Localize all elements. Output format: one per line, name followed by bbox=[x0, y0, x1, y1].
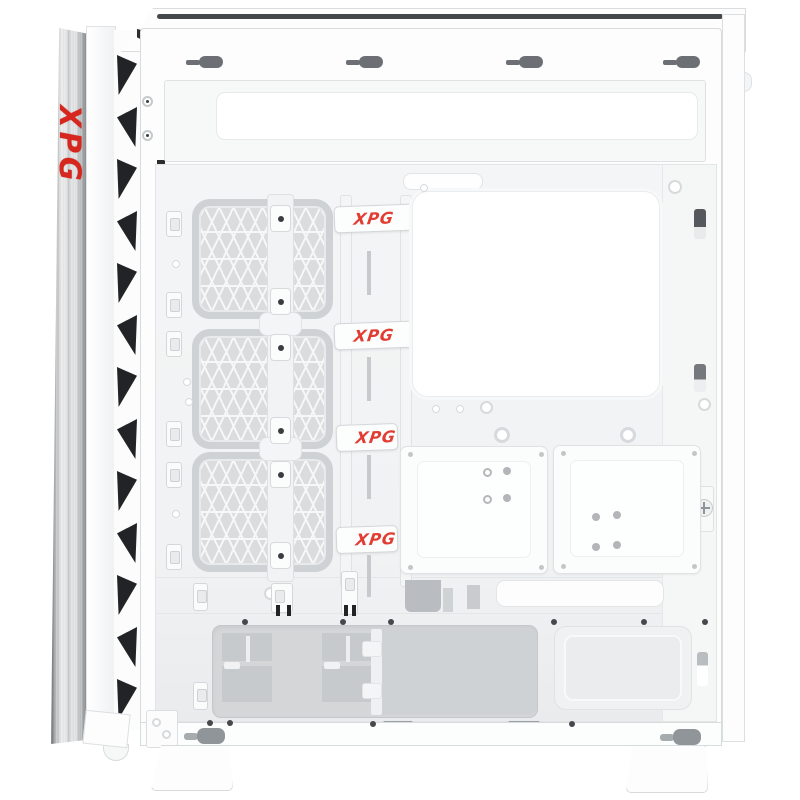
rivet-dot bbox=[207, 720, 213, 726]
strap-label: XPG bbox=[334, 322, 415, 350]
cable-strap-2: XPG bbox=[334, 321, 415, 351]
panel-clip bbox=[166, 421, 182, 447]
plate-stud bbox=[503, 494, 511, 502]
latch-handle bbox=[197, 728, 225, 744]
channel-bracket-small bbox=[467, 585, 480, 609]
plate-open-hole bbox=[483, 468, 492, 477]
cable-strap-1: XPG bbox=[334, 204, 415, 234]
interior-seam bbox=[156, 577, 716, 578]
rail-slot bbox=[367, 251, 371, 295]
drive-tray-silhouette bbox=[222, 666, 272, 702]
fan-mount-frame-1 bbox=[192, 199, 333, 319]
cable-grommet bbox=[620, 427, 636, 443]
channel-bracket-gray bbox=[405, 580, 441, 612]
latch-stem bbox=[660, 734, 674, 741]
panel-clip bbox=[166, 544, 182, 570]
drive-tray-handle bbox=[224, 662, 240, 669]
strap-label: XPG bbox=[336, 525, 399, 553]
plate-stud bbox=[613, 511, 621, 519]
interior-seam bbox=[156, 613, 716, 614]
plate-corner-hole bbox=[561, 564, 566, 569]
panel-hole bbox=[432, 405, 440, 413]
channel-tick bbox=[352, 605, 356, 616]
channel-tick bbox=[344, 605, 348, 616]
panel-clip bbox=[166, 331, 182, 357]
top-panel-edge-trim bbox=[157, 14, 723, 19]
rear-edge-panel bbox=[722, 14, 745, 742]
rear-vent-slot bbox=[694, 209, 706, 239]
bracket-hole bbox=[152, 718, 161, 727]
vent-triangle bbox=[117, 419, 137, 459]
plate-corner-hole bbox=[561, 451, 566, 456]
front-frame-screw bbox=[142, 96, 153, 107]
front-bezel-column bbox=[86, 26, 116, 728]
plate-stud bbox=[592, 513, 600, 521]
top-mount-slot bbox=[676, 56, 700, 68]
fan-rail-clip bbox=[270, 205, 291, 232]
rivet-dot bbox=[702, 619, 708, 625]
plate-corner-hole bbox=[692, 564, 697, 569]
vent-triangle bbox=[117, 55, 137, 95]
front-vent-column bbox=[114, 30, 141, 730]
fan-rail-clip bbox=[270, 417, 291, 444]
channel-bracket-small bbox=[443, 588, 453, 612]
rivet-dot bbox=[340, 619, 346, 625]
panel-clip bbox=[166, 462, 182, 488]
latch-stem bbox=[184, 733, 198, 740]
panel-hole bbox=[183, 378, 191, 386]
vent-triangle bbox=[117, 471, 137, 511]
panel-hole bbox=[420, 184, 428, 192]
rear-vent-slot bbox=[697, 652, 708, 686]
cable-grommet bbox=[494, 427, 510, 443]
bezel-bottom-corner bbox=[82, 710, 130, 749]
drive-plate-2-inset bbox=[570, 460, 684, 557]
rear-screw-hole bbox=[698, 398, 711, 411]
rivet-dot bbox=[370, 721, 376, 727]
channel-tick bbox=[287, 605, 291, 616]
rivet-dot bbox=[242, 619, 248, 625]
drive-tray-rail bbox=[346, 636, 350, 662]
plate-stud bbox=[613, 541, 621, 549]
cable-strap-3: XPG bbox=[336, 423, 399, 452]
top-mount-slot bbox=[199, 56, 223, 68]
top-mount-slot bbox=[519, 56, 543, 68]
fan-bracket-rail bbox=[267, 194, 294, 582]
rivet-dot bbox=[551, 619, 557, 625]
plate-stud bbox=[503, 467, 511, 475]
vent-triangle bbox=[117, 159, 137, 199]
vent-triangle bbox=[117, 315, 137, 355]
rail-slot bbox=[367, 555, 371, 597]
vent-triangle bbox=[117, 367, 137, 407]
drive-tray-handle bbox=[324, 662, 340, 669]
bottom-rail bbox=[140, 722, 722, 746]
fan-rail-clip bbox=[270, 461, 291, 488]
motherboard-tray-cutout bbox=[412, 191, 660, 397]
fan-mount-frame-2 bbox=[192, 329, 333, 449]
panel-clip bbox=[166, 292, 182, 318]
cable-strap-4: XPG bbox=[336, 525, 399, 554]
top-mount-slot-stem bbox=[506, 60, 520, 65]
psu-recess-inset bbox=[564, 635, 682, 701]
vent-triangle bbox=[117, 627, 137, 667]
case-foot-rear bbox=[626, 745, 708, 793]
front-frame-screw bbox=[142, 130, 153, 141]
latch-handle bbox=[673, 729, 701, 745]
plate-corner-hole bbox=[539, 452, 544, 457]
front-corner-bracket bbox=[146, 710, 178, 748]
front-xpg-logo: XPG bbox=[51, 86, 87, 204]
rear-vent-slot bbox=[694, 364, 706, 392]
cable-pass-slot bbox=[403, 173, 483, 190]
vent-triangle bbox=[117, 263, 137, 303]
rivet-dot bbox=[227, 720, 233, 726]
rail-slot bbox=[367, 357, 371, 401]
top-mount-slot-stem bbox=[186, 60, 200, 65]
channel-clip bbox=[193, 583, 208, 611]
panel-hole bbox=[172, 510, 180, 518]
channel-clip bbox=[193, 682, 208, 710]
case-foot-front bbox=[151, 745, 233, 791]
vent-triangle bbox=[117, 211, 137, 251]
panel-hole bbox=[172, 260, 180, 268]
fan-rail-clip bbox=[270, 288, 291, 315]
fan-mount-frame-3 bbox=[192, 452, 333, 572]
divider-tab bbox=[362, 683, 382, 699]
psu-cable-slot bbox=[496, 580, 664, 607]
vent-triangle bbox=[117, 575, 137, 615]
plate-corner-hole bbox=[408, 565, 413, 570]
standoff-hole bbox=[668, 180, 682, 194]
drive-bay-right-zone bbox=[382, 629, 536, 715]
rail-slot bbox=[367, 455, 371, 499]
pc-case-product-image: XPG XPG XPG bbox=[0, 0, 800, 800]
fan-rail-clip bbox=[270, 334, 291, 361]
drive-plate-1-inset bbox=[417, 461, 531, 558]
strap-label: XPG bbox=[334, 205, 415, 233]
fan-rail-clip bbox=[270, 542, 291, 569]
top-mount-slot-stem bbox=[346, 60, 360, 65]
rear-edge-bump bbox=[744, 72, 752, 92]
panel-hole bbox=[185, 398, 193, 406]
plate-corner-hole bbox=[408, 452, 413, 457]
plate-corner-hole bbox=[692, 451, 697, 456]
plate-open-hole bbox=[483, 495, 492, 504]
top-mount-slot bbox=[359, 56, 383, 68]
vent-triangle bbox=[117, 107, 137, 147]
drive-tray-rail bbox=[246, 636, 250, 662]
channel-tick bbox=[276, 605, 280, 616]
front-logo-text: XPG bbox=[51, 86, 87, 204]
rivet-dot bbox=[641, 619, 647, 625]
plate-stud bbox=[592, 543, 600, 551]
rivet-dot bbox=[388, 619, 394, 625]
panel-clip bbox=[166, 211, 182, 237]
bracket-hole bbox=[162, 730, 171, 739]
rivet-dot bbox=[569, 721, 575, 727]
vent-triangle bbox=[117, 523, 137, 563]
fan-rail-joint bbox=[259, 312, 302, 336]
top-radiator-tray-inset bbox=[216, 92, 698, 140]
standoff-hole bbox=[480, 401, 493, 414]
strap-label: XPG bbox=[336, 423, 399, 451]
divider-tab bbox=[362, 641, 382, 657]
panel-hole bbox=[456, 405, 464, 413]
top-mount-slot-stem bbox=[663, 60, 677, 65]
plate-corner-hole bbox=[539, 565, 544, 570]
